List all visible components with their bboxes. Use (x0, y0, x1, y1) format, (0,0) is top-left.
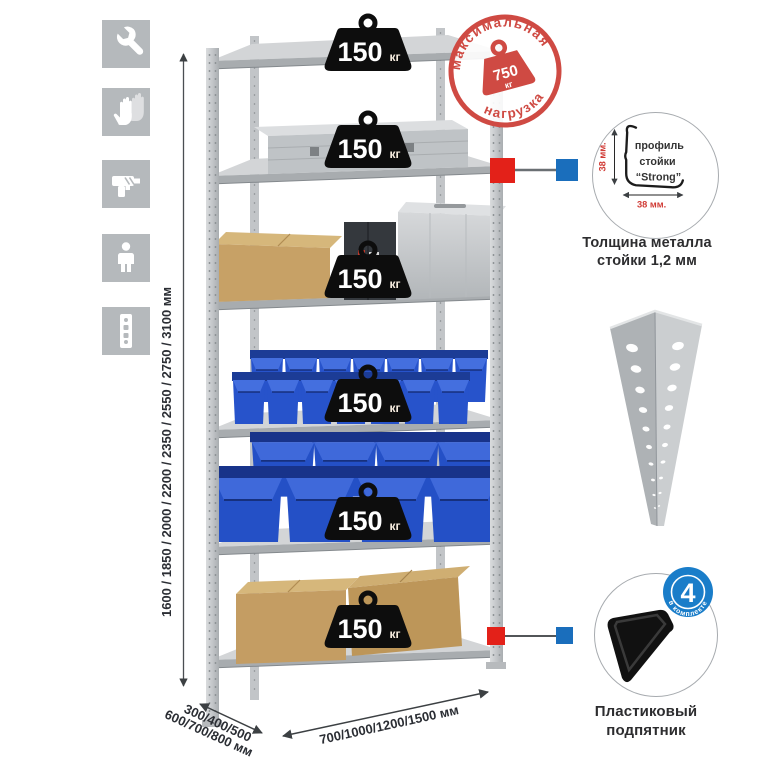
foot-callout-connector (487, 627, 573, 645)
person-icon (102, 234, 150, 282)
svg-text:стойки: стойки (639, 156, 675, 168)
red-marker-top (490, 158, 515, 183)
wrench-icon (102, 20, 150, 68)
width-dimension: 700/1000/1200/1500 мм (283, 692, 488, 747)
svg-text:кг: кг (389, 627, 400, 641)
angle-post-image (598, 302, 722, 539)
profile-horizontal-dimension: 38 мм. (623, 195, 683, 210)
svg-text:кг: кг (389, 401, 400, 415)
rack-post-icon (102, 307, 150, 355)
blue-marker-top (556, 159, 578, 181)
svg-text:профиль: профиль (635, 140, 684, 152)
svg-text:150: 150 (337, 388, 382, 418)
height-dimension: 1600 / 1850 / 2000 / 2200 / 2350 / 2550 … (159, 54, 184, 686)
badge-number: 4 (680, 578, 695, 608)
weight-shelf-1: 150 кг (325, 16, 412, 71)
svg-text:150: 150 (337, 134, 382, 164)
infographic-canvas: 1600 / 1850 / 2000 / 2200 / 2350 / 2550 … (0, 0, 765, 765)
profile-detail-circle: 38 мм. 38 мм. профиль стойки “Strong” (592, 112, 719, 239)
svg-text:“Strong”: “Strong” (636, 171, 681, 183)
svg-text:150: 150 (337, 614, 382, 644)
svg-text:38 мм.: 38 мм. (598, 142, 608, 171)
drill-icon (102, 160, 150, 208)
svg-text:150: 150 (337, 37, 382, 67)
svg-text:кг: кг (389, 277, 400, 291)
svg-text:150: 150 (337, 506, 382, 536)
metal-thickness-caption: Толщина металла стойки 1,2 мм (577, 234, 717, 270)
red-marker-bottom (487, 627, 505, 645)
blue-marker-bottom (556, 627, 573, 644)
weight-shelf-2: 150 кг (325, 113, 412, 168)
plastic-foot-caption: Пластиковый подпятник (576, 702, 716, 740)
svg-text:кг: кг (389, 147, 400, 161)
svg-text:150: 150 (337, 264, 382, 294)
profile-vertical-dimension: 38 мм. (598, 130, 615, 185)
gloves-icon (102, 88, 150, 136)
profile-label: профиль стойки “Strong” (635, 140, 684, 183)
svg-text:38 мм.: 38 мм. (637, 200, 666, 210)
height-dimension-label: 1600 / 1850 / 2000 / 2200 / 2350 / 2550 … (159, 287, 174, 617)
set-count-badge: 4 в комплекте (662, 566, 714, 623)
svg-text:кг: кг (389, 519, 400, 533)
profile-callout-connector (490, 158, 578, 183)
cardboard-box-small (214, 232, 342, 302)
max-load-stamp: максимальная нагрузка 750 кг (438, 2, 572, 137)
svg-text:кг: кг (389, 50, 400, 64)
silver-case-large (398, 202, 506, 300)
shelf-load-weights: 150 кг 150 кг 150 кг 150 кг (325, 16, 412, 648)
